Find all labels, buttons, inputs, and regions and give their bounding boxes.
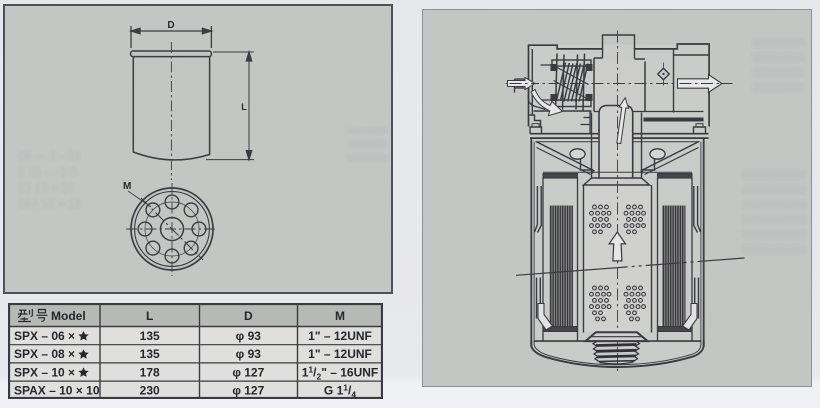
svg-text:φ 127: φ 127 — [232, 365, 264, 379]
svg-text:φ 93: φ 93 — [236, 329, 262, 343]
svg-text:135: 135 — [140, 347, 160, 361]
svg-text:φ 93: φ 93 — [236, 347, 262, 361]
svg-text:M: M — [335, 309, 345, 323]
svg-text:L: L — [241, 102, 247, 112]
svg-text:135: 135 — [140, 329, 160, 343]
svg-text:178: 178 — [140, 365, 160, 379]
svg-text:D: D — [167, 20, 174, 31]
svg-text:SPX – 06 ×: SPX – 06 × — [14, 329, 75, 343]
svg-text:SPX – 08 ×: SPX – 08 × — [14, 347, 75, 361]
svg-text:D: D — [244, 309, 253, 323]
svg-text:11/2" – 16UNF: 11/2" – 16UNF — [302, 364, 379, 381]
svg-text:SPAX – 10 × 10: SPAX – 10 × 10 — [14, 384, 100, 398]
svg-text:Model: Model — [51, 309, 86, 323]
svg-text:230: 230 — [140, 384, 160, 398]
svg-text:L: L — [146, 309, 153, 323]
svg-text:1" – 12UNF: 1" – 12UNF — [308, 329, 372, 343]
svg-text:1" – 12UNF: 1" – 12UNF — [308, 347, 372, 361]
svg-text:φ 127: φ 127 — [232, 384, 264, 398]
svg-text:SPX – 10 ×: SPX – 10 × — [14, 365, 75, 379]
